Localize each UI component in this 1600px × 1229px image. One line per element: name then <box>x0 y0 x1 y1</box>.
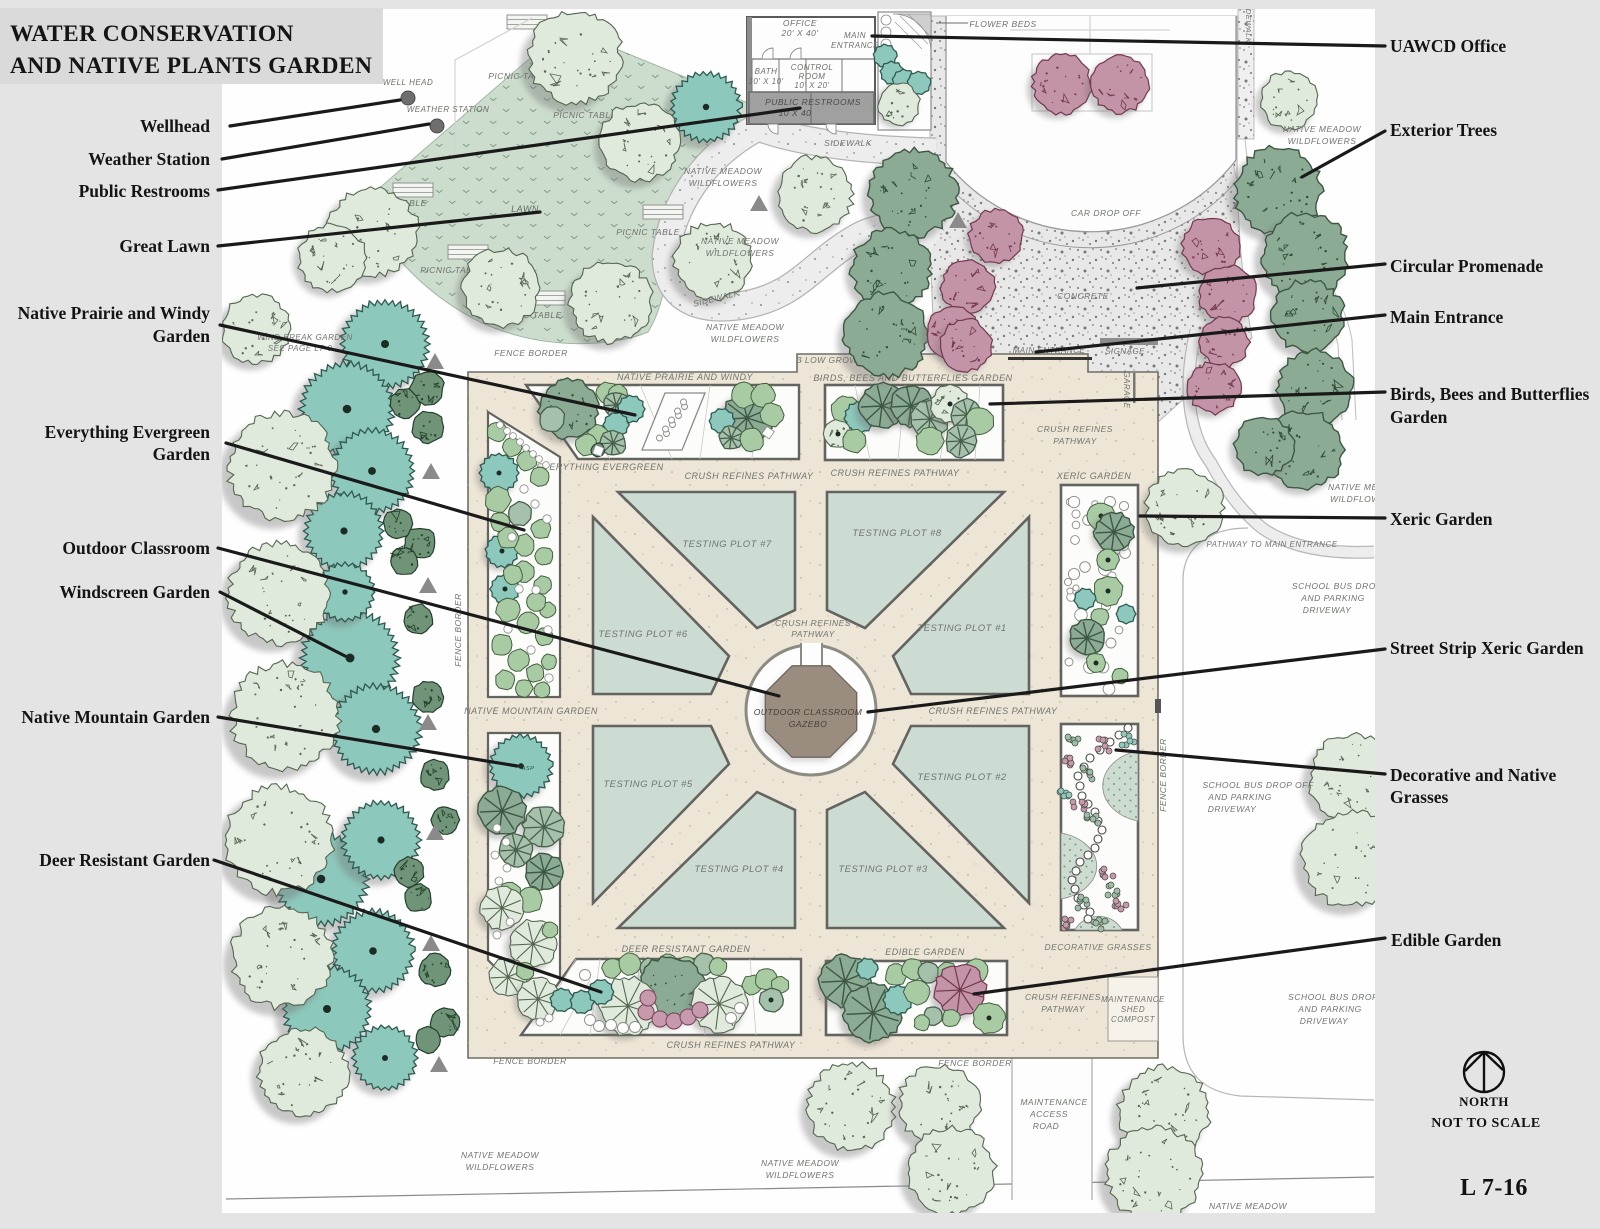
svg-text:Native Prairie and Windy: Native Prairie and Windy <box>18 303 211 323</box>
svg-text:Garden: Garden <box>1390 407 1448 427</box>
svg-text:Public Restrooms: Public Restrooms <box>79 181 211 201</box>
svg-text:DECORATIVE GRASSES: DECORATIVE GRASSES <box>1044 942 1151 952</box>
svg-text:Decorative and Native: Decorative and Native <box>1390 765 1556 785</box>
svg-text:Birds, Bees and Butterflies: Birds, Bees and Butterflies <box>1390 384 1589 404</box>
svg-text:DRIVEWAY: DRIVEWAY <box>1303 605 1352 615</box>
svg-text:FENCE BORDER: FENCE BORDER <box>493 1056 567 1066</box>
svg-text:DRIVEWAY: DRIVEWAY <box>1208 804 1257 814</box>
svg-text:ENTRANCE: ENTRANCE <box>831 41 879 50</box>
svg-text:TESTING PLOT #5: TESTING PLOT #5 <box>603 779 693 790</box>
svg-text:CRUSH REFINES PATHWAY: CRUSH REFINES PATHWAY <box>831 468 960 478</box>
svg-text:CRUSH REFINES PATHWAY: CRUSH REFINES PATHWAY <box>929 706 1058 716</box>
svg-text:Wellhead: Wellhead <box>140 116 210 136</box>
svg-text:Street Strip Xeric Garden: Street Strip Xeric Garden <box>1390 638 1584 658</box>
svg-text:TESTING PLOT #6: TESTING PLOT #6 <box>598 629 688 640</box>
svg-text:NATIVE PRAIRIE AND WINDY: NATIVE PRAIRIE AND WINDY <box>617 372 754 382</box>
svg-text:FENCE BORDER: FENCE BORDER <box>938 1058 1012 1068</box>
svg-text:Deer Resistant Garden: Deer Resistant Garden <box>39 850 210 870</box>
svg-text:CRUSH REFINES: CRUSH REFINES <box>1037 424 1113 434</box>
svg-text:WELL HEAD: WELL HEAD <box>383 78 434 87</box>
svg-text:CRUSH REFINES: CRUSH REFINES <box>1025 992 1101 1002</box>
svg-text:SHED: SHED <box>1121 1005 1145 1014</box>
svg-text:WILDFLOWERS: WILDFLOWERS <box>1288 136 1357 146</box>
svg-text:Garden: Garden <box>153 326 211 346</box>
svg-text:TESTING PLOT #7: TESTING PLOT #7 <box>682 539 772 550</box>
svg-text:FLOWER BEDS: FLOWER BEDS <box>969 19 1036 29</box>
svg-text:NATIVE MOUNTAIN GARDEN: NATIVE MOUNTAIN GARDEN <box>464 706 598 716</box>
svg-text:AND PARKING: AND PARKING <box>1297 1004 1361 1014</box>
svg-text:10' X 10': 10' X 10' <box>748 77 783 86</box>
svg-text:WEATHER STATION: WEATHER STATION <box>407 105 490 114</box>
svg-text:XERIC GARDEN: XERIC GARDEN <box>1056 471 1132 481</box>
svg-text:Outdoor Classroom: Outdoor Classroom <box>62 538 210 558</box>
svg-text:NORTH: NORTH <box>1459 1094 1509 1109</box>
svg-text:TESTING PLOT #4: TESTING PLOT #4 <box>694 864 783 875</box>
svg-text:WILDFLOWERS: WILDFLOWERS <box>466 1162 535 1172</box>
svg-text:OUTDOOR CLASSROOM: OUTDOOR CLASSROOM <box>754 707 863 717</box>
svg-text:FENCE BORDER: FENCE BORDER <box>494 348 568 358</box>
svg-text:Great Lawn: Great Lawn <box>119 236 210 256</box>
svg-text:NATIVE MEADOW: NATIVE MEADOW <box>684 166 763 176</box>
svg-text:Native Mountain Garden: Native Mountain Garden <box>21 707 210 727</box>
svg-text:BATH: BATH <box>755 67 778 76</box>
svg-text:WILDFLOWERS: WILDFLOWERS <box>766 1170 835 1180</box>
svg-text:Windscreen Garden: Windscreen Garden <box>59 582 210 602</box>
svg-text:ACCESS: ACCESS <box>1029 1109 1068 1119</box>
svg-text:SCHOOL BUS DROP O: SCHOOL BUS DROP O <box>1288 992 1388 1002</box>
svg-text:PICNIC TABLE: PICNIC TABLE <box>616 227 679 237</box>
svg-text:CRUSH REFINES PATHWAY: CRUSH REFINES PATHWAY <box>667 1040 796 1050</box>
svg-text:Garden: Garden <box>153 444 211 464</box>
svg-text:L 7-16: L 7-16 <box>1460 1175 1528 1201</box>
svg-text:WILDFLOWERS: WILDFLOWERS <box>711 334 780 344</box>
svg-text:EDIBLE GARDEN: EDIBLE GARDEN <box>885 947 965 957</box>
svg-text:Edible Garden: Edible Garden <box>1391 930 1502 950</box>
svg-text:Main Entrance: Main Entrance <box>1390 307 1503 327</box>
svg-text:PATHWAY: PATHWAY <box>1041 1004 1085 1014</box>
svg-text:TESTING PLOT #8: TESTING PLOT #8 <box>852 528 942 539</box>
svg-text:FENCE BORDER: FENCE BORDER <box>453 593 463 667</box>
svg-text:CRUSH REFINES: CRUSH REFINES <box>775 618 851 628</box>
svg-text:BIRDS, BEES AND BUTTERFLIES GA: BIRDS, BEES AND BUTTERFLIES GARDEN <box>813 373 1012 383</box>
svg-text:CAR DROP OFF: CAR DROP OFF <box>1071 208 1141 218</box>
svg-text:COMPOST: COMPOST <box>1111 1015 1156 1024</box>
svg-text:AND PARKING: AND PARKING <box>1207 792 1271 802</box>
svg-text:WILDFLOWERS: WILDFLOWERS <box>706 248 775 258</box>
svg-text:NOT TO SCALE: NOT TO SCALE <box>1431 1116 1541 1131</box>
svg-text:10' X 20': 10' X 20' <box>794 81 829 90</box>
svg-text:Grasses: Grasses <box>1390 787 1449 807</box>
svg-text:SCHOOL BUS DROP: SCHOOL BUS DROP <box>1292 581 1382 591</box>
svg-text:ASP: ASP <box>521 766 535 772</box>
svg-text:NATIVE MEADOW: NATIVE MEADOW <box>1283 124 1362 134</box>
svg-text:PATHWAY: PATHWAY <box>791 629 835 639</box>
svg-text:NATIVE MEADOW: NATIVE MEADOW <box>701 236 780 246</box>
svg-text:MAIN: MAIN <box>844 31 866 40</box>
svg-text:AND PARKING: AND PARKING <box>1300 593 1364 603</box>
svg-text:GARAGE: GARAGE <box>1122 371 1131 408</box>
svg-text:NATIVE MEADOW: NATIVE MEADOW <box>1209 1201 1288 1211</box>
svg-text:EVERYTHING EVERGREEN: EVERYTHING EVERGREEN <box>536 462 663 472</box>
svg-text:SCHOOL BUS DROP OFF: SCHOOL BUS DROP OFF <box>1202 780 1313 790</box>
svg-text:NATIVE MEADOW: NATIVE MEADOW <box>761 1158 840 1168</box>
svg-text:Exterior Trees: Exterior Trees <box>1390 120 1497 140</box>
svg-text:TESTING PLOT #1: TESTING PLOT #1 <box>917 623 1006 634</box>
svg-text:SIGNAGE: SIGNAGE <box>1105 347 1145 356</box>
svg-text:DRIVEWAY: DRIVEWAY <box>1300 1016 1349 1026</box>
svg-text:CONCRETE: CONCRETE <box>1057 291 1109 301</box>
svg-text:Xeric Garden: Xeric Garden <box>1390 509 1493 529</box>
svg-text:WATER CONSERVATION: WATER CONSERVATION <box>10 21 294 47</box>
svg-text:ROOM: ROOM <box>799 72 826 81</box>
svg-text:OFFICE: OFFICE <box>783 18 817 28</box>
svg-text:CONTROL: CONTROL <box>791 63 834 72</box>
svg-text:GAZEBO: GAZEBO <box>789 719 827 729</box>
svg-text:Circular Promenade: Circular Promenade <box>1390 256 1543 276</box>
svg-text:TESTING PLOT #3: TESTING PLOT #3 <box>838 864 928 875</box>
svg-text:ROAD: ROAD <box>1033 1121 1060 1131</box>
svg-text:TESTING PLOT #2: TESTING PLOT #2 <box>917 772 1007 783</box>
svg-text:MAINTENANCE: MAINTENANCE <box>1020 1097 1087 1107</box>
svg-text:CRUSH REFINES PATHWAY: CRUSH REFINES PATHWAY <box>685 471 814 481</box>
svg-text:NATIVE MEADOW: NATIVE MEADOW <box>461 1150 540 1160</box>
svg-text:SIDEWALK: SIDEWALK <box>824 138 872 148</box>
svg-text:FENCE BORDER: FENCE BORDER <box>1158 738 1168 812</box>
svg-text:PATHWAY: PATHWAY <box>1053 436 1097 446</box>
svg-text:PUBLIC RESTROOMS: PUBLIC RESTROOMS <box>765 97 861 107</box>
svg-text:NATIVE MEADOW: NATIVE MEADOW <box>706 322 785 332</box>
svg-text:DEER RESISTANT GARDEN: DEER RESISTANT GARDEN <box>622 944 751 954</box>
svg-text:Weather Station: Weather Station <box>88 149 210 169</box>
svg-text:WILDFLOWERS: WILDFLOWERS <box>689 178 758 188</box>
svg-text:UAWCD Office: UAWCD Office <box>1390 36 1506 56</box>
svg-text:MAINTENANCE: MAINTENANCE <box>1101 995 1165 1004</box>
svg-text:Everything Evergreen: Everything Evergreen <box>45 422 211 442</box>
svg-text:20' X 40': 20' X 40' <box>780 28 818 38</box>
svg-text:PATHWAY TO MAIN ENTRANCE: PATHWAY TO MAIN ENTRANCE <box>1206 540 1337 549</box>
svg-text:AND NATIVE PLANTS GARDEN: AND NATIVE PLANTS GARDEN <box>10 53 372 79</box>
